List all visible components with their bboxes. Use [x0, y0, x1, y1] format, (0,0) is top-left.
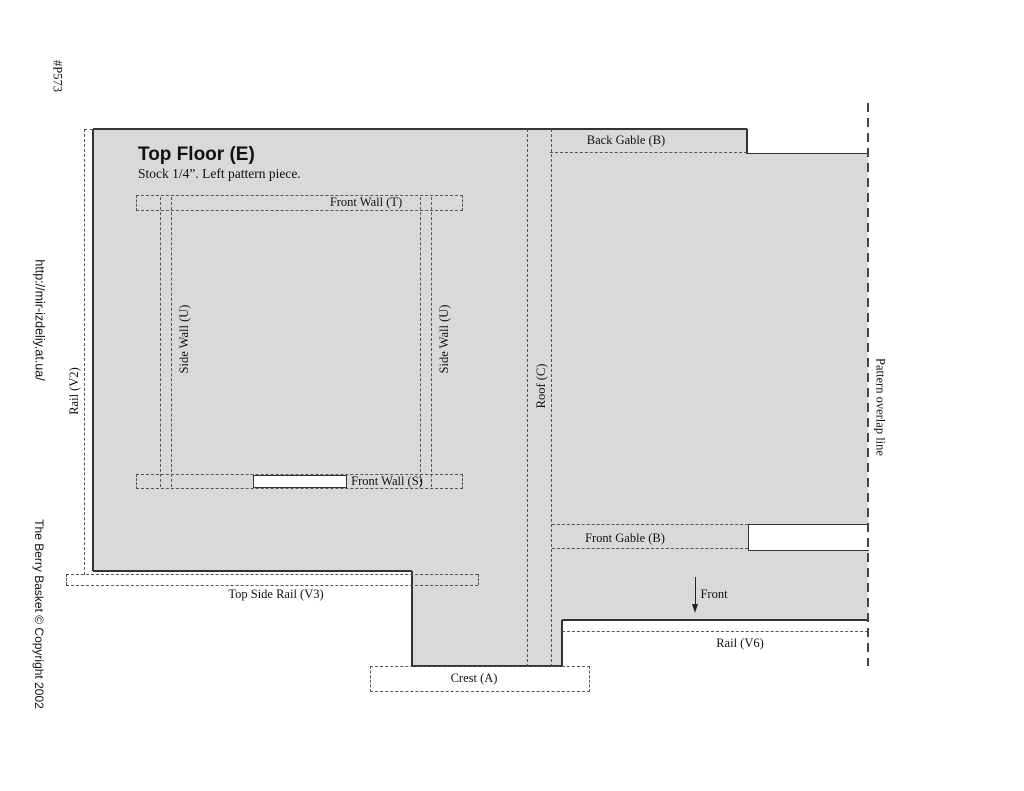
side-wall-right-label: Side Wall (U) — [438, 305, 451, 374]
top-side-rail-v3-right-line — [478, 574, 479, 585]
pattern-number-label: #P573 — [51, 60, 64, 92]
copyright-label: The Berry Basket © Copyright 2002 — [33, 519, 45, 709]
front-direction-label: Front — [700, 588, 727, 601]
front-wall-t-label: Front Wall (T) — [330, 196, 402, 209]
rail-v6-notch-left-edge — [561, 620, 563, 666]
piece-top-edge — [93, 128, 747, 130]
front-gable-notch — [748, 524, 869, 551]
site-url-label: http://mir-izdeliy.at.ua/ — [33, 259, 46, 380]
rail-v6-dashed-line — [562, 631, 868, 632]
front-wall-t-outline — [136, 195, 463, 211]
front-gable-top-line — [552, 524, 748, 525]
side-wall-left-line-1 — [160, 197, 161, 487]
front-arrow-head — [692, 604, 698, 613]
top-side-rail-v3-label: Top Side Rail (V3) — [228, 588, 323, 601]
front-gable-label: Front Gable (B) — [585, 532, 665, 545]
piece-left-edge — [92, 129, 94, 571]
piece-subtitle: Stock 1/4”. Left pattern piece. — [138, 166, 301, 182]
front-wall-s-label: Front Wall (S) — [351, 475, 423, 488]
top-side-rail-v3-top-line — [66, 574, 478, 575]
rail-v2-dashed-line — [84, 129, 85, 575]
piece-title: Top Floor (E) — [138, 144, 255, 166]
front-wall-s-slot — [253, 475, 347, 488]
crest-label: Crest (A) — [451, 672, 498, 685]
side-wall-left-line-2 — [171, 197, 172, 487]
top-side-rail-v3-left-line — [66, 574, 67, 585]
rail-v2-label: Rail (V2) — [68, 367, 81, 415]
pattern-page: Top Floor (E) Stock 1/4”. Left pattern p… — [0, 0, 1024, 791]
piece-bottomleft-edge — [93, 570, 412, 572]
rail-v2-top-connector — [84, 129, 93, 130]
front-arrow-shaft — [695, 577, 696, 605]
pattern-overlap-line — [867, 103, 869, 666]
back-gable-right-edge — [746, 129, 748, 154]
pattern-overlap-label: Pattern overlap line — [874, 358, 887, 456]
rail-v6-notch-top-edge — [562, 619, 868, 621]
side-wall-right-line-1 — [420, 197, 421, 487]
side-wall-left-label: Side Wall (U) — [178, 305, 191, 374]
right-section-top-edge — [747, 153, 868, 155]
front-gable-bottom-line — [552, 548, 748, 549]
roof-label: Roof (C) — [535, 364, 548, 409]
roof-right-line — [551, 129, 552, 667]
roof-left-line — [527, 129, 528, 667]
side-wall-right-line-2 — [431, 197, 432, 487]
rail-v6-label: Rail (V6) — [716, 637, 764, 650]
back-gable-bottom-line — [550, 152, 747, 153]
back-gable-label: Back Gable (B) — [587, 134, 665, 147]
